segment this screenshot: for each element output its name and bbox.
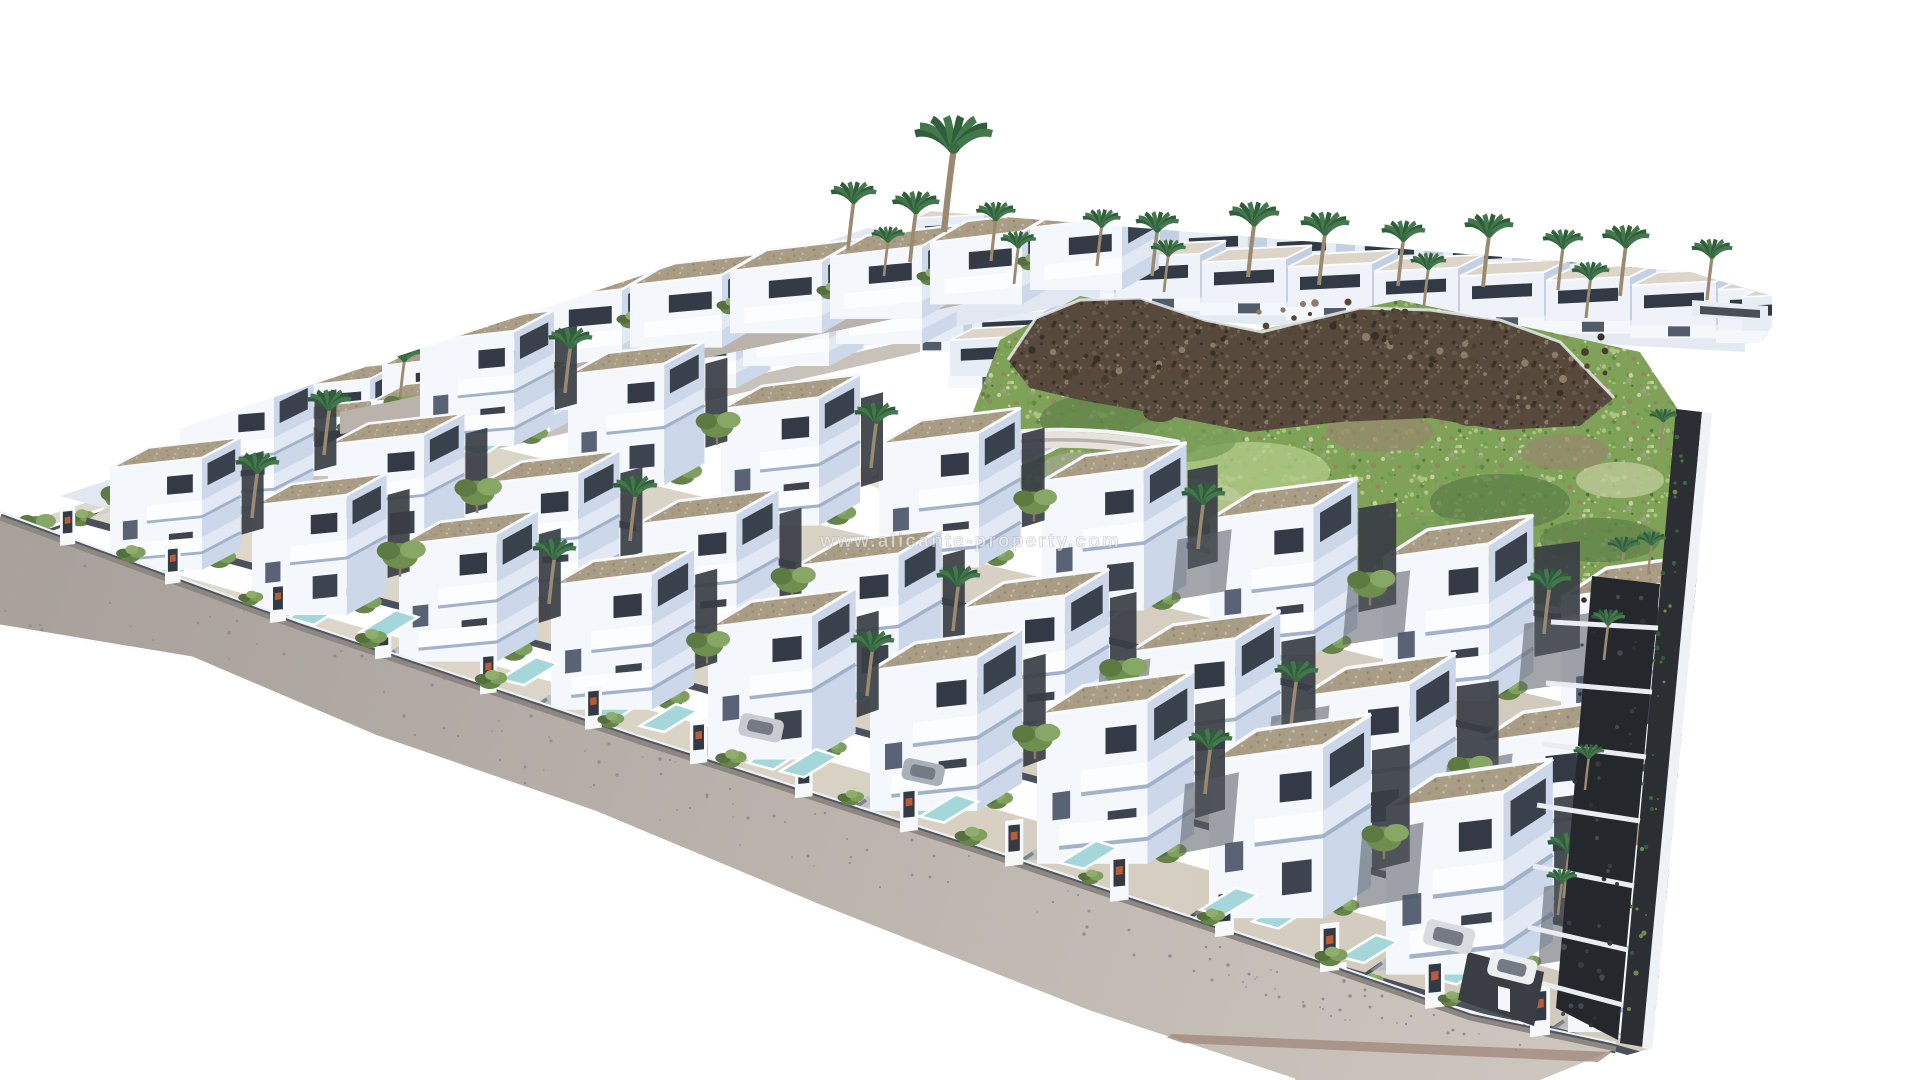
svg-text:www.alicante-property.com: www.alicante-property.com — [819, 531, 1121, 552]
